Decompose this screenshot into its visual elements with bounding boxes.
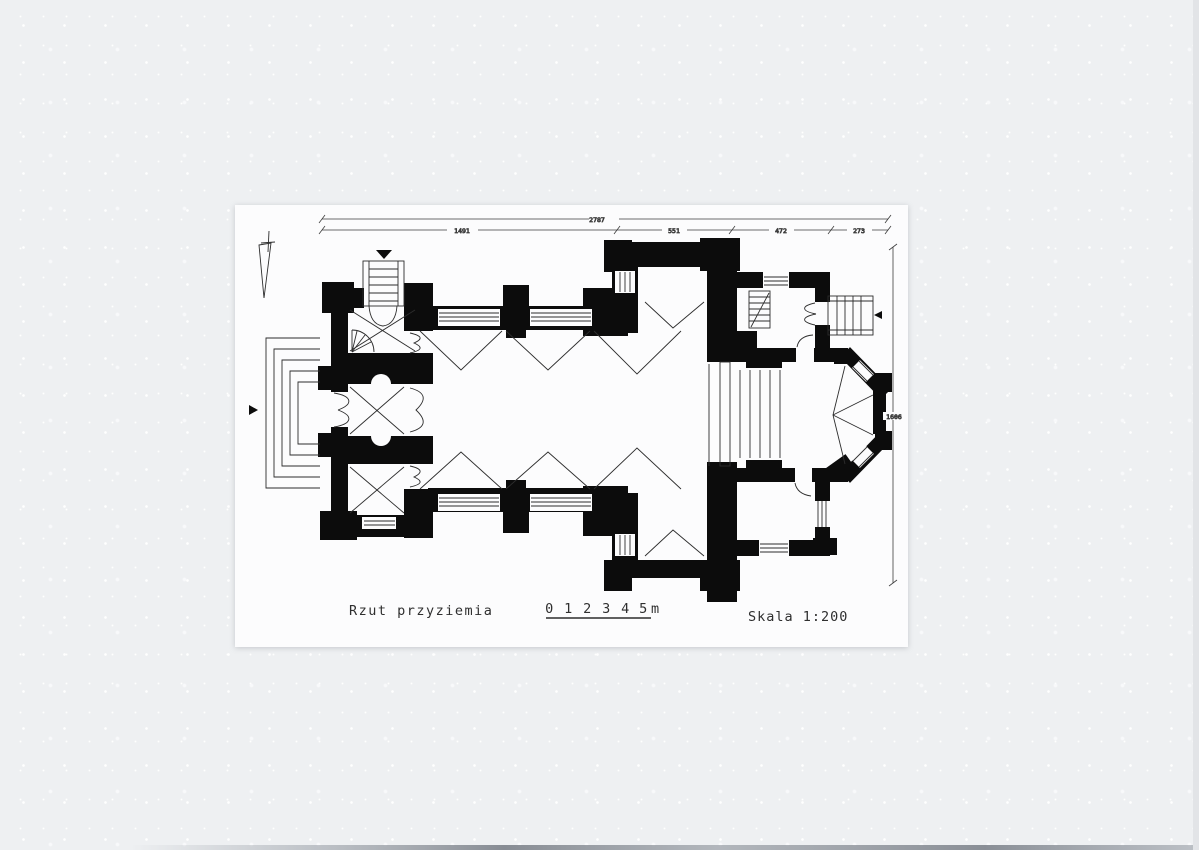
floor-plan-scan: 2787 1491 551 472 273 1606 Rzut p (0, 0, 1199, 850)
scan-right-edge (1193, 0, 1199, 850)
window-nave-south-1 (438, 494, 500, 511)
scale-unit: m (651, 601, 659, 617)
drawing-sheet (235, 205, 908, 647)
drawing-title: Rzut przyziemia (349, 603, 493, 619)
dim-seg2-label: 551 (668, 227, 680, 235)
window-nave-north-1 (438, 309, 500, 326)
scale-mark-4: 4 (621, 601, 631, 617)
dim-seg3-label: 472 (775, 227, 787, 235)
scale-mark-0: 0 (545, 601, 555, 617)
scale-mark-1: 1 (564, 601, 574, 617)
dim-seg4-label: 273 (853, 227, 865, 235)
scale-mark-5: 5 (639, 601, 649, 617)
dim-total-label: 2787 (589, 216, 605, 224)
dim-side-label: 1606 (886, 413, 902, 421)
window-nave-south-2 (530, 494, 592, 511)
scale-mark-2: 2 (583, 601, 593, 617)
window-west-block-south (362, 517, 396, 529)
scale-mark-3: 3 (602, 601, 612, 617)
scanned-page: 2787 1491 551 472 273 1606 Rzut p (0, 0, 1199, 850)
scale-ratio-label: Skala 1:200 (748, 609, 848, 625)
scan-edge-artifact (130, 845, 1199, 850)
dim-seg1-label: 1491 (454, 227, 470, 235)
window-nave-north-2 (530, 309, 592, 326)
